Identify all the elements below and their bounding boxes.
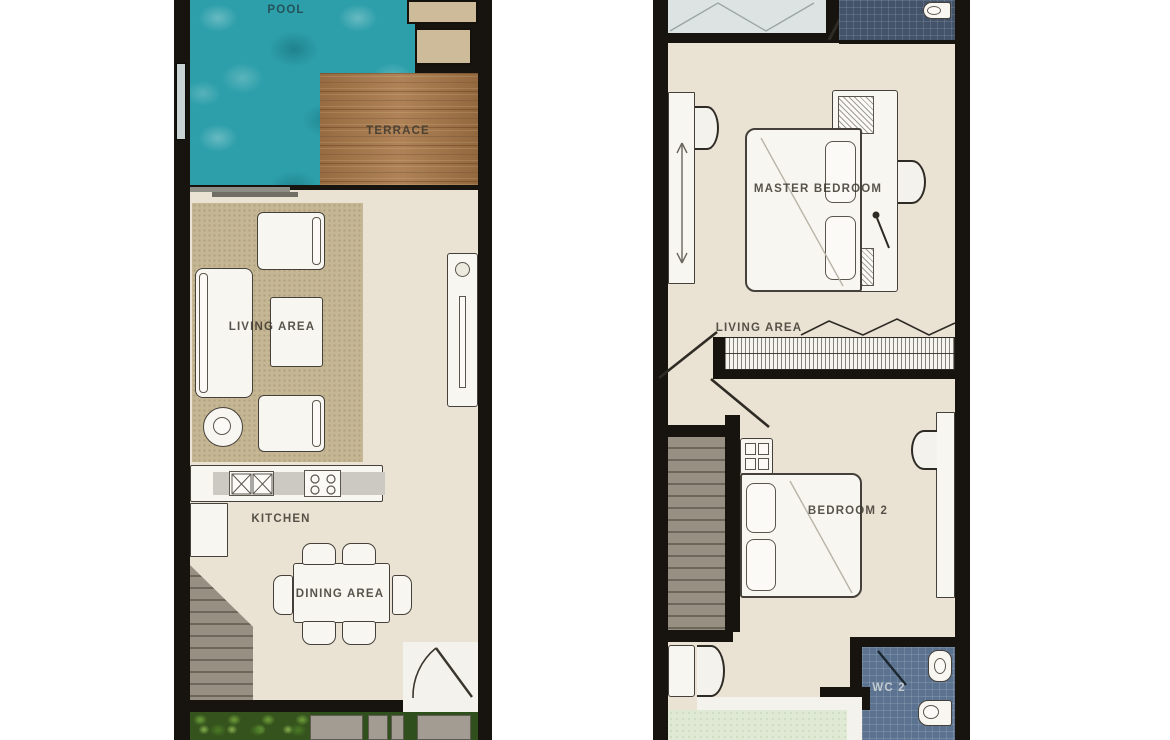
plant-icon	[455, 262, 470, 277]
window	[176, 63, 186, 140]
tv-cabinet	[447, 253, 478, 407]
dining-chair	[342, 543, 376, 565]
sofa	[195, 268, 253, 398]
balcony-floor	[668, 710, 847, 740]
drawer	[758, 443, 769, 455]
kitchen-label: KITCHEN	[228, 511, 334, 525]
living-area-label: LIVING AREA	[214, 319, 329, 333]
stepping-stone	[391, 715, 404, 740]
closet-tiled-area	[668, 0, 826, 33]
stepping-stone	[368, 715, 388, 740]
garden-strip	[190, 712, 478, 740]
door-leaf	[708, 377, 772, 429]
dining-table: DINING AREA	[293, 563, 390, 623]
master-bathroom-floor	[839, 0, 955, 40]
terrace-label: TERRACE	[340, 123, 455, 137]
dining-chair	[273, 575, 293, 615]
master-bedroom-label: MASTER BEDROOM	[741, 181, 895, 195]
pool-steps	[415, 28, 472, 65]
stove	[304, 470, 341, 497]
master-bed	[745, 128, 862, 292]
armchair-back	[312, 217, 321, 265]
bedroom-2-label: BEDROOM 2	[790, 503, 905, 517]
stepping-stone	[417, 715, 471, 740]
dining-chair	[302, 543, 336, 565]
wall-segment	[653, 630, 733, 642]
bathroom-door-arc	[898, 160, 926, 204]
wc-2-floor: WC 2	[862, 647, 955, 740]
upper-floor-plan: MASTER BEDROOM LIVING AREA	[653, 0, 970, 740]
door-jamb	[668, 645, 695, 697]
wardrobe-2	[936, 412, 955, 598]
drawer	[745, 458, 756, 470]
refrigerator	[190, 503, 228, 557]
wall-segment	[725, 415, 740, 632]
tv	[459, 296, 466, 388]
drawer	[745, 443, 756, 455]
toilet	[918, 700, 952, 726]
stepping-stone	[310, 715, 363, 740]
basin-bowl	[934, 658, 946, 674]
door-swing-arc	[697, 645, 725, 697]
kitchen-counter	[190, 465, 383, 502]
floor-plan-image: POOL TERRACE LIVING AREA	[0, 0, 1170, 740]
wall-segment	[668, 33, 826, 43]
armchair-back	[312, 400, 321, 447]
staircase-upper	[668, 437, 725, 632]
armchair	[257, 212, 325, 270]
plants	[190, 712, 310, 740]
sink	[229, 471, 274, 496]
door-leaf	[657, 330, 719, 380]
toilet-bowl	[927, 6, 941, 15]
ground-floor-plan: POOL TERRACE LIVING AREA	[174, 0, 492, 740]
sliding-door	[212, 192, 298, 197]
wall-segment	[850, 637, 955, 647]
drawer	[758, 458, 769, 470]
side-table-top	[213, 417, 231, 435]
threshold	[697, 697, 847, 710]
armchair	[258, 395, 325, 452]
balustrade-shelf	[720, 337, 955, 370]
ceiling-fan-symbol	[869, 208, 895, 252]
nightstand	[740, 438, 773, 475]
toilet	[923, 2, 951, 19]
entry-door-arc	[403, 640, 477, 700]
wardrobe-door-arc	[911, 430, 937, 470]
dining-chair	[302, 621, 336, 645]
dining-chair	[392, 575, 412, 615]
toilet-bowl	[923, 705, 939, 719]
dining-area-label: DINING AREA	[282, 586, 397, 600]
sofa-back	[199, 273, 208, 393]
pool-steps	[407, 0, 478, 24]
closet-door	[668, 92, 695, 284]
dining-chair	[342, 621, 376, 645]
wall-segment	[839, 40, 955, 44]
wash-basin	[928, 650, 952, 682]
bed-2	[740, 473, 862, 598]
pool-label: POOL	[228, 2, 343, 16]
closet-door-arc	[695, 106, 719, 150]
threshold	[847, 697, 862, 740]
side-table	[203, 407, 243, 447]
wall-segment	[174, 700, 403, 712]
